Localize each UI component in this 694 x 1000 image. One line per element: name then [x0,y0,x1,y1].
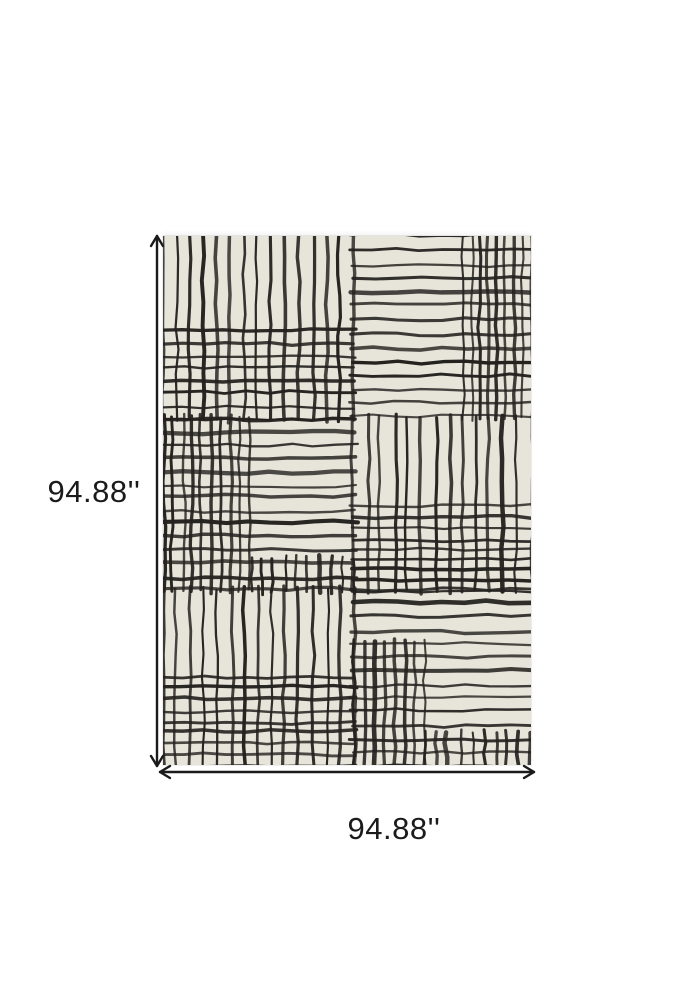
rug-dimension-diagram: 94.88'' 94.88'' [0,0,694,1000]
horizontal-dimension-arrow-icon [152,761,542,783]
rug-image [163,236,531,765]
height-dimension-label: 94.88'' [34,476,154,507]
width-dimension-label: 94.88'' [334,813,454,844]
rug-pattern-svg [163,236,531,765]
